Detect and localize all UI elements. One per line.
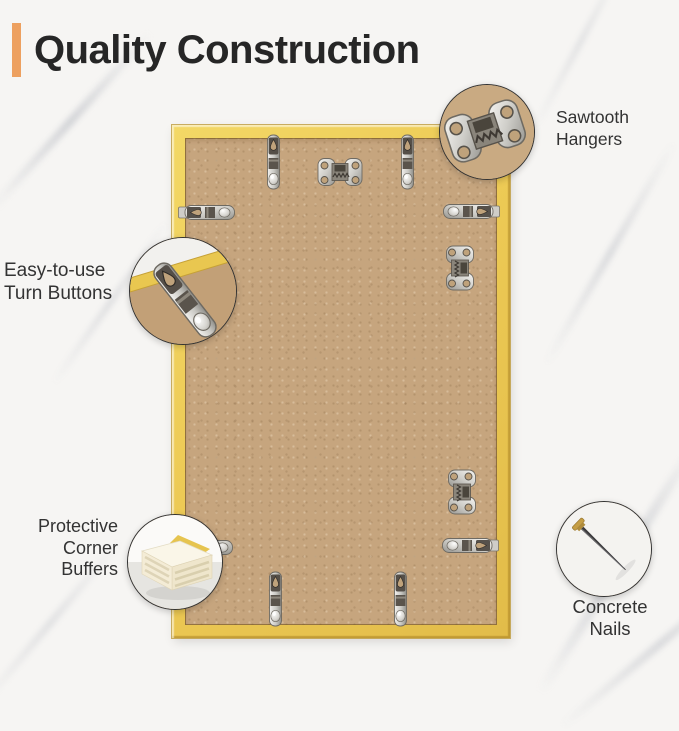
turn-buttons-callout (129, 237, 237, 345)
page-title: Quality Construction (34, 24, 420, 76)
turn-button-horizontal-icon (441, 536, 499, 555)
sawtooth-hangers-callout (439, 84, 535, 180)
corner-buffers-label: Protective Corner Buffers (8, 516, 118, 581)
sawtooth-hangers-label: Sawtooth Hangers (556, 106, 629, 150)
product-infographic: Quality Construction Sawtooth Hangers (0, 0, 679, 679)
turn-button-horizontal-icon (442, 202, 500, 221)
concrete-nails-label: Concrete Nails (550, 596, 670, 639)
corner-buffers-callout (127, 514, 223, 610)
turn-button-icon (130, 238, 236, 344)
marble-vein (542, 139, 678, 368)
turn-button-vertical-icon (266, 134, 281, 190)
sawtooth-hanger-pair-icon (446, 469, 478, 515)
turn-buttons-label: Easy-to-use Turn Buttons (4, 259, 112, 305)
sawtooth-hanger-pair-icon (444, 245, 476, 291)
turn-button-horizontal-icon (178, 203, 236, 222)
turn-button-vertical-icon (400, 134, 415, 190)
concrete-nail-icon (557, 502, 651, 596)
corner-buffer-icon (128, 515, 222, 609)
turn-button-vertical-icon (268, 571, 283, 627)
concrete-nails-callout (556, 501, 652, 597)
title-accent-bar (12, 23, 21, 77)
sawtooth-hanger-icon (440, 85, 534, 179)
turn-button-vertical-icon (393, 571, 408, 627)
sawtooth-hanger-pair-icon (317, 156, 363, 188)
